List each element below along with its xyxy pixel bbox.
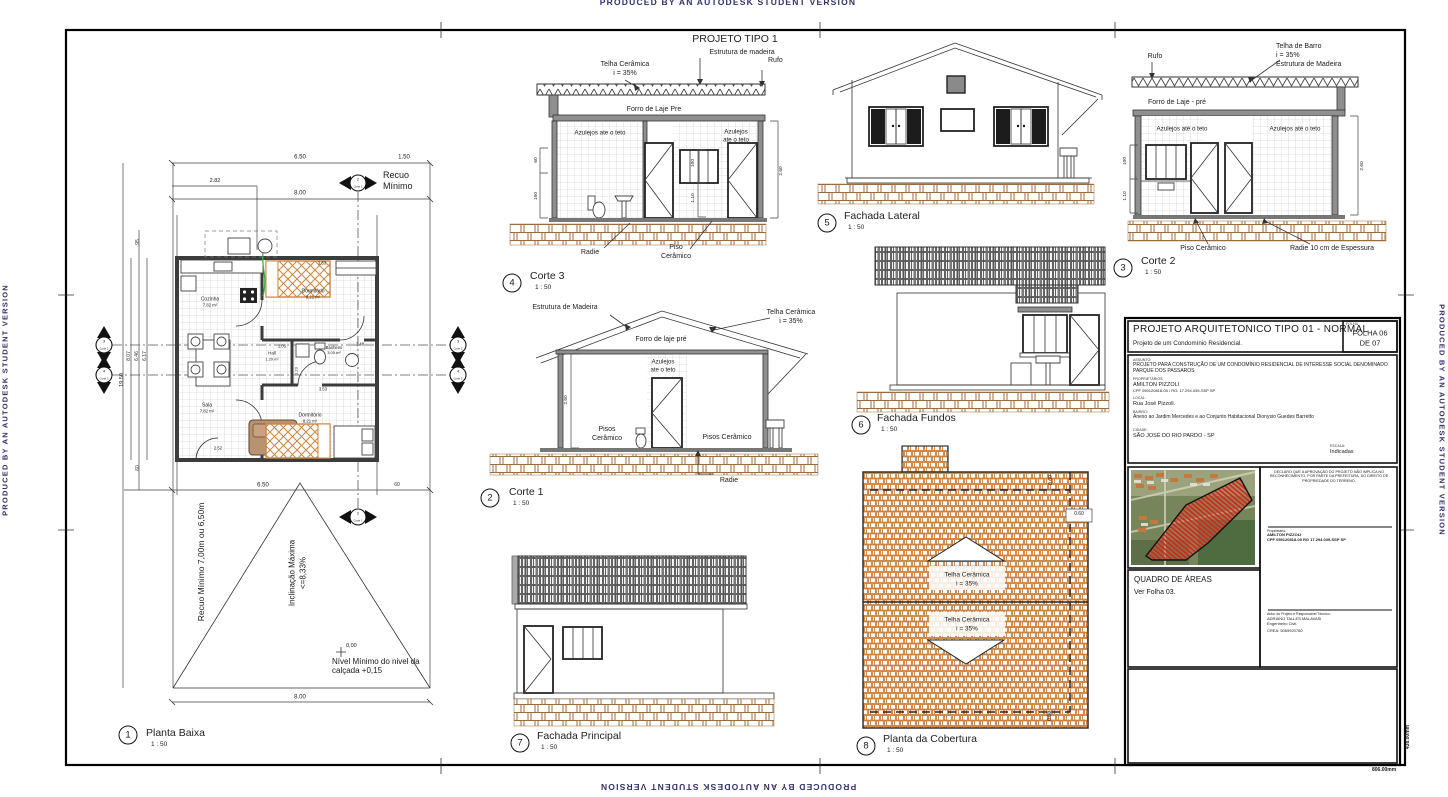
fachada-principal-drawing [512,556,774,726]
recuo-minimo-box-line1: Recuo [383,170,409,180]
label-telha1a-cobertura: Telha Cerâmica [944,571,989,578]
dim-650-bottom: 6.50 [257,483,269,490]
view-scale-principal: 1 : 50 [541,744,557,751]
room-sala-area: 7.82 m² [200,409,214,414]
dim-650-top: 6.50 [294,155,306,162]
dim-800-top: 8.00 [294,191,306,198]
label-telha-corte1: Telha Cerâmica [767,309,816,317]
quadro-areas-sub: Ver Folha 03. [1134,589,1176,597]
label-azulejos-right1-corte3: Azulejos [724,128,747,135]
view-scale-fundos: 1 : 50 [881,426,897,433]
dim-617-left: 6.17 [143,351,149,361]
label-estrutura-corte3: Estrutura de madeira [709,49,774,57]
label-telha-i-corte2: i = 35% [1276,52,1300,60]
dim-646-left: 6.46 [135,351,141,361]
dim-060-mid-cobertura: 0.60 [1074,512,1084,518]
note-nivel-calcada: Nível Mínimo do nivel da calçada +0,15 [332,657,420,675]
label-telha-ceramica-corte3: Telha Cerâmica [601,61,650,69]
label-radie-corte2: Radie 10 cm de Espessura [1290,245,1374,253]
dim-123: 1.23 [295,367,300,375]
view-num-corte3: 4 [503,274,522,293]
frame-height-dim: 438.00mm [1406,725,1412,749]
view-title-cobertura: Planta da Cobertura [883,733,977,745]
label-telha2b-cobertura: i = 35% [956,625,978,632]
room-cozinha-area: 7.82 m² [201,303,219,308]
label-radie-corte3: Radie [581,249,599,257]
label-estrutura-corte2: Estrutura de Madeira [1276,61,1341,69]
room-sala: Sala 7.82 m² [200,402,214,414]
room-banheiro: Banheiro 3.05 m² [326,345,343,355]
label-azulejos2-corte1: ate o teto [650,368,675,375]
dim-150-top: 1.50 [398,155,410,162]
dim-353a: 3.53 [318,262,326,267]
label-estrutura-corte1: Estrutura de Madeira [532,304,597,312]
titleblock-subtitle: Projeto de um Condomínio Residencial. [1133,340,1242,347]
marker-corte3-right-label: Corte 3 [454,377,463,380]
corte3-drawing [510,58,778,249]
label-forro-corte1: Forro de laje pré [635,336,686,344]
view-scale-lateral: 1 : 50 [848,224,864,231]
view-title-principal: Fachada Principal [537,730,621,742]
view-scale-corte1: 1 : 50 [513,500,529,507]
dim-105: 1.05 [278,345,286,350]
view-scale-corte3: 1 : 50 [535,284,551,291]
dim-260-corte3: 2.60 [779,166,785,175]
label-telha2a-cobertura: Telha Cerâmica [944,616,989,623]
folha-number: FOLHA 06 [1352,330,1387,339]
label-azulejos-left-corte3: Azulejos ate o teto [575,129,626,136]
dim-248: 2.48 [356,343,364,348]
label-rufo-corte3: Rufo [768,57,783,65]
proprietarios-doc: CPF 059120818-00 / RG: 17.294.039-SSP SP [1133,389,1215,394]
dim-95-left: 95 [136,239,142,245]
label-radie-corte1: Radie [720,477,738,485]
room-banheiro-area: 3.05 m² [326,350,343,355]
view-num-fundos: 6 [852,416,871,435]
room-dorm1-area: 8.21 m² [301,295,324,300]
view-title-planta: Planta Baixa [146,727,205,739]
dim-060-bottom-cobertura: 0.60 [1048,711,1054,721]
fachada-lateral-drawing [818,43,1102,204]
marker-corte1-bottom-num: 2 [357,512,359,517]
dim-807-left: 8.07 [127,351,133,361]
label-forro-corte2: Forro de Laje - pré [1148,99,1206,107]
dim-353b: 3.53 [319,388,327,393]
label-telha-i-corte1: i = 35% [779,318,803,326]
dim-60-left: 60 [136,465,142,471]
dim-282-top: 2.82 [210,178,221,184]
marker-corte2-right-label: Corte 2 [454,347,463,350]
label-pisos2-corte1: Cerâmico [592,435,622,443]
marker-corte1-bottom-label: Corte 1 [354,519,363,522]
label-rufo-corte2: Rufo [1148,53,1163,61]
marker-corte2-left-label: Corte 2 [100,347,109,350]
autodesk-watermark-top: PRODUCED BY AN AUTODESK STUDENT VERSION [600,0,857,8]
label-piso2-corte3: Cerâmico [661,253,691,261]
view-scale-corte2: 1 : 50 [1145,269,1161,276]
marker-corte2-right-num: 3 [457,340,459,345]
view-title-fundos: Fachada Fundos [877,412,956,424]
room-hall-area: 1.29 m² [265,356,279,361]
label-azulejos-right-corte2: Azulejos até o teto [1270,125,1321,132]
view-num-principal: 7 [511,734,530,753]
declaracao-text: DECLARO QUE A APROVAÇÃO DO PROJETO NÃO I… [1266,470,1392,483]
label-telha1b-cobertura: i = 35% [956,580,978,587]
label-telha-corte2: Telha de Barro [1276,43,1322,51]
folha-total: DE 07 [1360,340,1381,349]
quadro-areas-title: QUADRO DE ÁREAS [1134,575,1212,584]
corte2-drawing [1128,60,1386,244]
room-hall: Hall 1.29 m² [265,351,279,362]
fachada-fundos-drawing [857,247,1109,412]
label-pisos1-corte1: Pisos [598,426,615,434]
sig1-doc: CPF 059120818-00 RG 17.294.039-SSP SP [1267,538,1346,543]
sig2-crea: CREA: 5069920760 [1267,629,1303,634]
recuo-minimo-box-line2: Mínimo [383,181,413,191]
proprietarios-caption: PROPRIETÁRIOS: [1133,377,1164,381]
dim-60-corte3: 60 [534,157,540,162]
label-azulejos-right2-corte3: ate o teto [723,136,749,143]
view-num-lateral: 5 [818,214,837,233]
autodesk-watermark-bottom: PRODUCED BY AN AUTODESK STUDENT VERSION [600,781,857,791]
escala-caption: ESCALA: [1330,444,1345,448]
escala-value: Indicadas [1330,449,1354,455]
view-scale-cobertura: 1 : 50 [887,747,903,754]
note-inclinacao-line1: Inclinação Máxima [287,540,296,606]
sig2-role: Engenheiro Civil. [1267,622,1297,627]
dim-150-corte3: 150 [534,192,540,200]
dim-110-corte3: 1.10 [691,193,697,202]
view-num-corte2: 3 [1114,259,1133,278]
room-cozinha: Cozinha 7.82 m² [201,296,219,308]
view-title-corte2: Corte 2 [1141,255,1175,267]
dim-100-corte2: 100 [1123,157,1129,165]
label-pisos-right-corte1: Pisos Cerâmico [702,434,751,442]
note-nivel-zero: 0,00 [346,643,357,649]
note-inclinacao-line2: <=8,33% [298,557,307,589]
view-title-corte1: Corte 1 [509,486,543,498]
architectural-sheet: PRODUCED BY AN AUTODESK STUDENT VERSION … [0,0,1448,797]
titleblock-title: PROJETO ARQUITETONICO TIPO 01 - NORMAL [1133,324,1368,336]
dim-1950-left: 19.50 [119,373,125,387]
label-piso1-corte3: Piso [669,244,683,252]
note-recuo-minimo: Recuo Mínimo 7,00m ou 6,50m [197,503,207,622]
aerial-map-image [1131,470,1255,565]
label-azulejos-left-corte2: Azulejos até o teto [1157,125,1208,132]
folha-caption: FOLHA [1346,322,1358,326]
view-num-planta: 1 [119,726,138,745]
marker-corte3-left-num: 4 [103,370,105,375]
label-azulejos1-corte1: Azulejos [652,360,675,367]
label-forro-corte3: Forro de Laje Pre [627,106,681,114]
dim-252: 2.52 [214,447,222,452]
room-dormitorio1: Dormitório 8.21 m² [301,288,324,300]
planta-baixa-drawing [96,160,466,705]
marker-corte2-left-num: 3 [103,340,105,345]
autodesk-watermark-right: PRODUCED BY AN AUTODESK STUDENT VERSION [1437,304,1446,536]
marker-corte1-top-label: Corte 1 [354,185,363,188]
marker-corte1-top-num: 2 [357,178,359,183]
view-title-lateral: Fachada Lateral [844,210,920,222]
dim-260-corte1: 2.60 [564,395,570,404]
room-dormitorio2: Dormitório 8.21 m² [298,412,321,424]
cidade-value: SÃO JOSÉ DO RIO PARDO - SP [1133,433,1215,439]
autodesk-watermark-left: PRODUCED BY AN AUTODESK STUDENT VERSION [2,284,11,516]
label-piso-corte2: Piso Cerâmico [1180,245,1226,253]
view-num-cobertura: 8 [857,737,876,756]
dim-060-top-cobertura: 0.60 [1049,475,1055,485]
view-scale-planta: 1 : 50 [151,741,167,748]
dim-100-corte3: 100 [691,159,697,167]
marker-corte3-left-label: Corte 3 [100,377,109,380]
dim-800-bottom: 8.00 [294,695,306,702]
label-telha-i-corte3: i = 35% [613,70,637,78]
assunto-value: PROJETO PARA CONSTRUÇÃO DE UM CONDOMÍNIO… [1133,363,1389,375]
sheet-heading: PROJETO TIPO 1 [692,33,777,45]
local-value: Rua José Pizzoli. [1133,401,1175,407]
view-title-corte3: Corte 3 [530,270,564,282]
cidade-caption: CIDADE: [1133,428,1148,432]
frame-width-dim: 806.00mm [1372,768,1396,774]
dim-260-corte2: 2.60 [1360,161,1366,170]
marker-corte3-right-num: 4 [457,370,459,375]
local-caption: LOCAL: [1133,396,1146,400]
drawing-linework [0,0,1448,797]
bairro-value: Anexo ao Jardim Mercedes e ao Conjunto H… [1133,415,1314,421]
dim-60-bottom: 60 [394,483,400,489]
room-dorm2-area: 8.21 m² [298,419,321,424]
view-num-corte1: 2 [481,489,500,508]
dim-110-corte2: 1.10 [1123,191,1129,200]
